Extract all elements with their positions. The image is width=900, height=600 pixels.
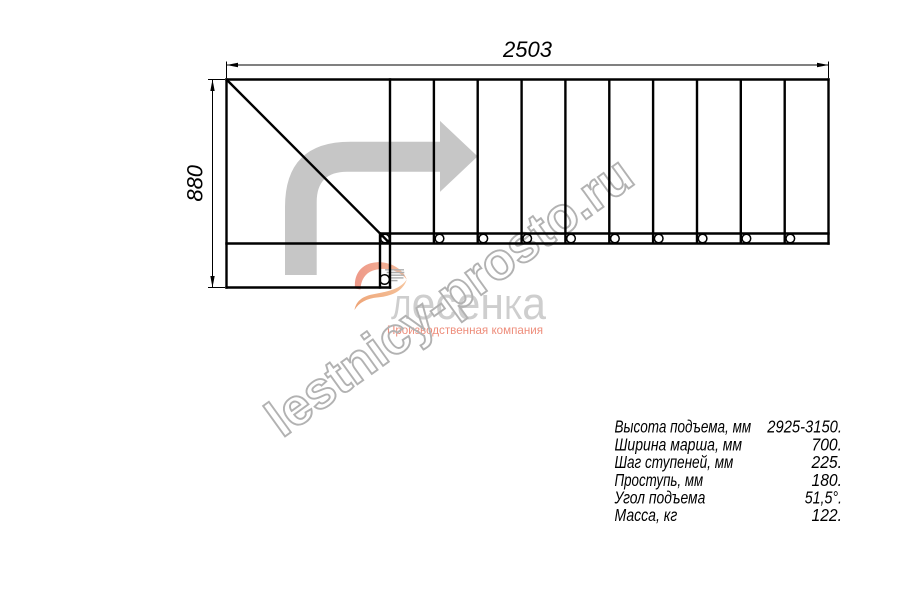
svg-text:880: 880 bbox=[183, 164, 208, 201]
svg-text:2503: 2503 bbox=[502, 37, 553, 62]
svg-text:Масса, кг: Масса, кг bbox=[615, 505, 678, 525]
svg-text:122.: 122. bbox=[812, 505, 843, 525]
